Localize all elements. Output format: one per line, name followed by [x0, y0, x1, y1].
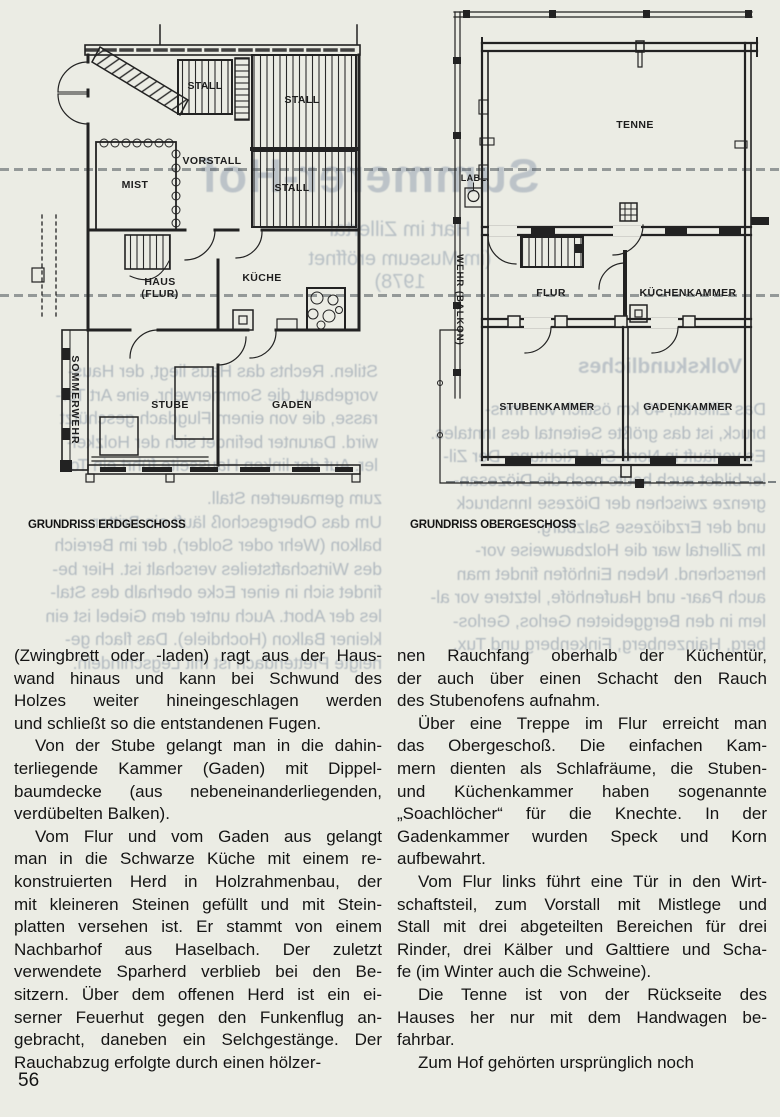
- room-label-gadenkammer: GADENKAMMER: [643, 401, 733, 413]
- erdgeschoss-plan: STALL STALL STALL VORSTALL MIST HAUS (FL…: [30, 20, 375, 485]
- room-label-vorstall: VORSTALL: [182, 155, 241, 167]
- room-label-stall-mid: STALL: [274, 182, 309, 194]
- room-label-mist: MIST: [122, 179, 149, 191]
- room-label-gaden: GADEN: [272, 399, 312, 411]
- erdgeschoss-caption: GRUNDRISS ERDGESCHOSS: [28, 519, 185, 531]
- body-text-line: gebracht, daneben ein Selchgestänge. Der: [14, 1029, 382, 1052]
- body-text-line: verdübelten Balken).: [14, 803, 382, 826]
- bleed-text-line: zum gemauerten Stall.: [14, 487, 382, 511]
- body-text-left-column: (Zwingbrett oder -laden) ragt aus der Ha…: [14, 645, 382, 1074]
- room-label-labl: LABL.: [461, 172, 490, 184]
- page-number: 56: [18, 1070, 39, 1092]
- bleed-text-line: balkon (Wehr oder Solder), der im Bereic…: [14, 534, 382, 558]
- bleed-text-line: les der Abort. Auch unter dem Giebel ist…: [14, 605, 382, 629]
- scanned-book-page: { "page": { "number": "56", "background"…: [0, 0, 780, 1117]
- body-text-line: aufbewahrt.: [397, 848, 767, 871]
- body-text-line: verwendete Sparherd verblieb bei den Be-: [14, 961, 382, 984]
- room-label-stall-small: STALL: [187, 80, 222, 92]
- body-text-line: fe (im Winter auch die Schweine).: [397, 961, 767, 984]
- body-text-line: und schließt so die entstandenen Fugen.: [14, 713, 382, 736]
- room-label-sommerwehr: SOMMERWEHR: [70, 355, 80, 444]
- room-label-stall-top: STALL: [284, 94, 319, 106]
- body-text-line: das Obergeschoß. Die einfachen Kam-: [397, 735, 767, 758]
- room-label-kueche: KÜCHE: [242, 272, 281, 284]
- obergeschoss-caption: GRUNDRISS OBERGESCHOSS: [410, 519, 576, 531]
- bleed-text-line: Im Zillertal war die Holzbauweise vor-: [396, 539, 766, 563]
- body-text-line: serner Feuerhut gegen den Funkenflug an-: [14, 1007, 382, 1030]
- body-text-line: Hauses her nur mit dem Handwagen be-: [397, 1007, 767, 1030]
- body-text-line: baumdecke (aus nebeneinanderliegenden,: [14, 781, 382, 804]
- bleed-text-line: auch Paar- und Haufenhöfe, letztere vor …: [396, 586, 766, 610]
- body-text-line: Gadenkammer wurden Speck und Korn: [397, 826, 767, 849]
- body-text-line: sitzern. Über dem offenen Herd ist ein e…: [14, 984, 382, 1007]
- bleed-text-line: lem in den Berggebieten Gerlos, Gerlos-: [396, 610, 766, 634]
- body-text-line: Holzes weiter hineingeschlagen werden: [14, 690, 382, 713]
- body-text-line: wand hinaus und kann bei Schwund des: [14, 668, 382, 691]
- room-label-wehr-balkon: WEHR (BALKON): [454, 254, 464, 346]
- body-text-line: Rinder, drei Kälber und Galttiere und Sc…: [397, 939, 767, 962]
- obergeschoss-plan-drawing: [435, 5, 775, 525]
- room-label-stube: STUBE: [151, 399, 189, 411]
- body-text-line: nen Rauchfang oberhalb der Küchentür,: [397, 645, 767, 668]
- body-text-line: mit kleineren Steinen gefüllt und mit St…: [14, 894, 382, 917]
- body-text-line: terliegende Kammer (Gaden) mit Dippel-: [14, 758, 382, 781]
- room-label-kuechenkammer: KÜCHENKAMMER: [640, 287, 737, 299]
- body-text-line: Nachbarhof aus Haselbach. Der zuletzt: [14, 939, 382, 962]
- body-text-line: Rauchabzug erfolgte durch einen hölzer-: [14, 1052, 382, 1075]
- room-label-stubenkammer: STUBENKAMMER: [499, 401, 594, 413]
- body-text-line: Vom Flur links führt eine Tür in den Wir…: [397, 871, 767, 894]
- bleed-text-line: findet sich in einer Ecke oberhalb des S…: [14, 581, 382, 605]
- body-text-line: Zum Hof gehörten ursprünglich noch: [397, 1052, 767, 1075]
- body-text-line: schaftsteil, zum Vorstall mit Mistlege u…: [397, 894, 767, 917]
- body-text-line: des Stubenofens aufnahm.: [397, 690, 767, 713]
- room-label-tenne: TENNE: [616, 119, 654, 131]
- bleed-text-line: des Wirtschaftsteiles verschalt ist. Hie…: [14, 558, 382, 582]
- body-text-line: Von der Stube gelangt man in die dahin-: [14, 735, 382, 758]
- body-text-line: Über eine Treppe im Flur erreicht man: [397, 713, 767, 736]
- body-text-line: „Soachlöcher“ für die Knechte. In der: [397, 803, 767, 826]
- body-text-line: konstruierten Herd in Holzrahmenbau, der: [14, 871, 382, 894]
- body-text-line: Vom Flur und vom Gaden aus gelangt: [14, 826, 382, 849]
- body-text-line: man in die Schwarze Küche mit einem re-: [14, 848, 382, 871]
- body-text-line: Die Tenne ist von der Rückseite des: [397, 984, 767, 1007]
- body-text-line: der auch über einen Schacht den Rauch: [397, 668, 767, 691]
- body-text-right-column: nen Rauchfang oberhalb der Küchentür,der…: [397, 645, 767, 1074]
- body-text-line: platten versehen ist. Er stammt von eine…: [14, 916, 382, 939]
- body-text-line: und Küchenkammer haben sogenannte: [397, 781, 767, 804]
- bleed-text-line: herrschend. Neben Einhöfen findet man: [396, 563, 766, 587]
- room-label-haus-flur: HAUS (FLUR): [141, 276, 178, 300]
- body-text-line: (Zwingbrett oder -laden) ragt aus der Ha…: [14, 645, 382, 668]
- room-label-flur: FLUR: [536, 287, 566, 299]
- body-text-line: fahrbar.: [397, 1029, 767, 1052]
- body-text-line: Stall mit drei abgeteilten Bereichen für…: [397, 916, 767, 939]
- obergeschoss-plan: TENNE LABL. WEHR (BALKON) FLUR KÜCHENKAM…: [435, 5, 775, 525]
- body-text-line: mern dienten als Schlafräume, die Stuben…: [397, 758, 767, 781]
